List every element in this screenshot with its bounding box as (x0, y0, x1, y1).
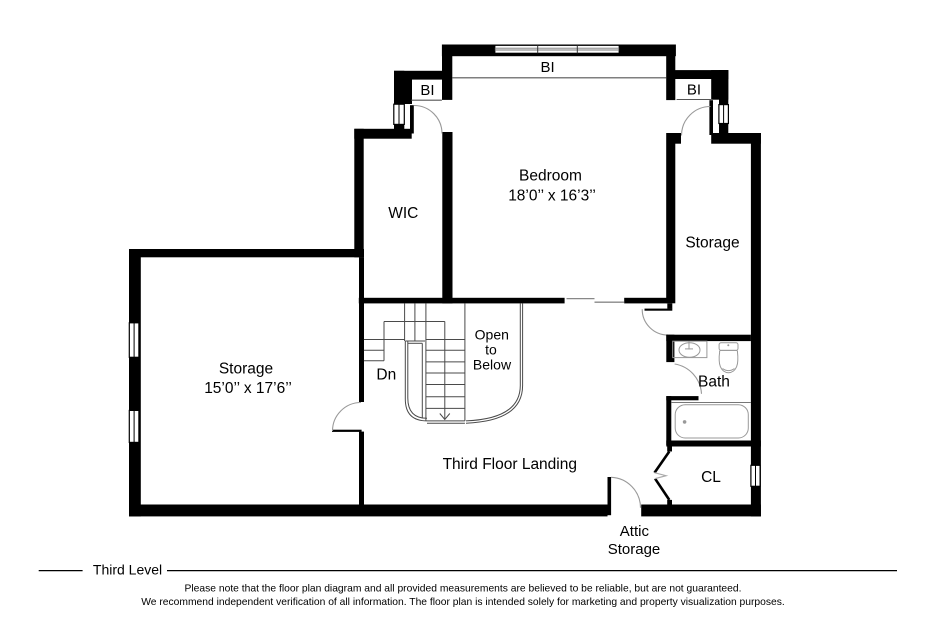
svg-text:Bath: Bath (698, 374, 730, 391)
svg-text:Bedroom: Bedroom (519, 168, 582, 185)
svg-text:BI: BI (687, 82, 701, 99)
svg-text:Storage: Storage (685, 235, 739, 252)
svg-text:Open: Open (475, 327, 509, 343)
svg-text:15’0’’ x 17’6’’: 15’0’’ x 17’6’’ (204, 380, 292, 397)
svg-text:Storage: Storage (608, 541, 661, 558)
svg-text:Please note that the floor pla: Please note that the floor plan diagram … (185, 583, 742, 594)
svg-text:Attic: Attic (620, 523, 650, 540)
svg-text:Dn: Dn (376, 367, 396, 384)
svg-text:Third Floor Landing: Third Floor Landing (443, 456, 577, 473)
svg-text:18’0’’ x 16’3’’: 18’0’’ x 16’3’’ (508, 188, 596, 205)
svg-text:BI: BI (420, 82, 434, 99)
svg-text:to: to (485, 342, 497, 358)
svg-text:Third Level: Third Level (93, 562, 162, 578)
svg-text:Below: Below (473, 357, 512, 373)
svg-text:BI: BI (541, 59, 555, 76)
svg-text:Storage: Storage (219, 361, 273, 378)
svg-text:CL: CL (701, 469, 721, 486)
svg-text:WIC: WIC (388, 205, 418, 222)
svg-text:We recommend independent verif: We recommend independent verification of… (141, 597, 785, 608)
